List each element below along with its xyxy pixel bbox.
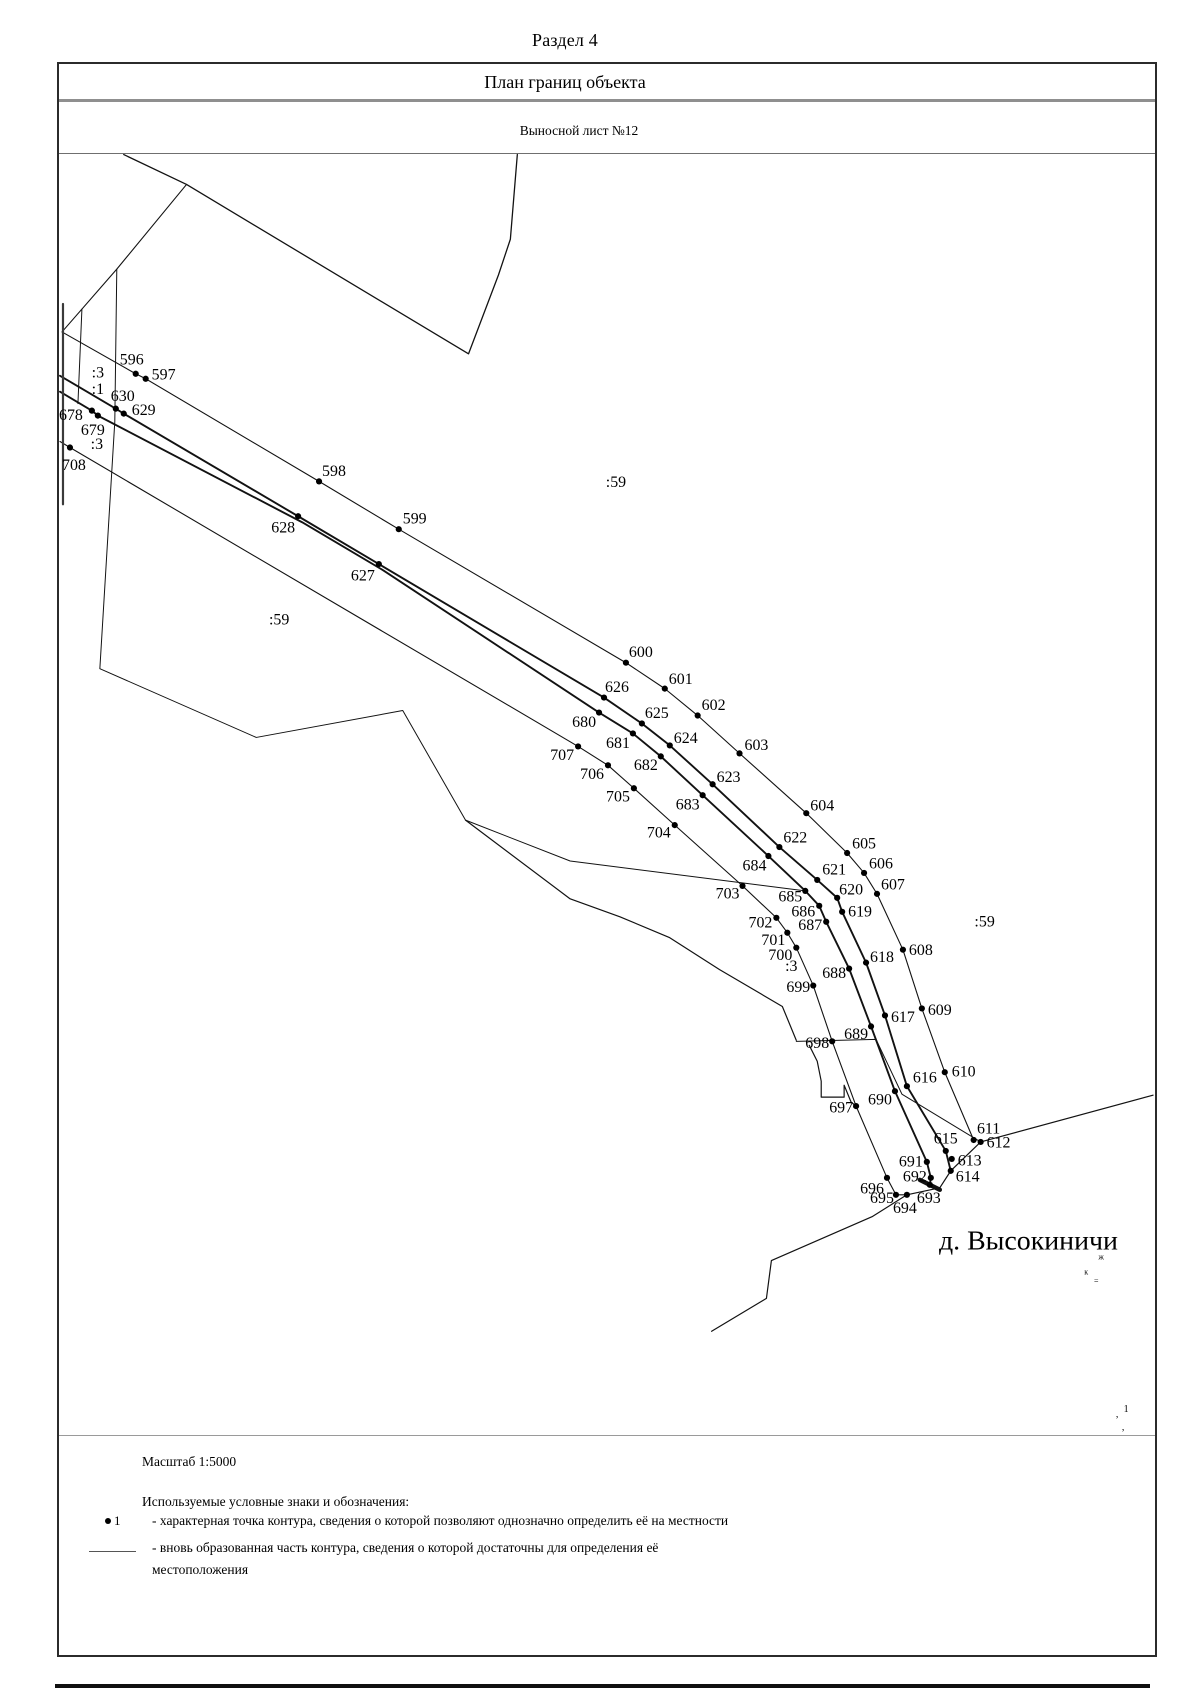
boundary-point-label: 707: [550, 747, 574, 764]
boundary-point-dot: [736, 750, 742, 756]
boundary-line-field-polygon: [124, 155, 518, 354]
boundary-point-label: 598: [322, 463, 346, 480]
boundary-point-dot: [839, 909, 845, 915]
boundary-point-dot: [658, 753, 664, 759]
boundary-point-dot: [816, 903, 822, 909]
parcel-label: :59: [974, 913, 994, 930]
boundary-point-label: 681: [606, 735, 630, 752]
boundary-point-dot: [823, 919, 829, 925]
boundary-point-dot: [396, 526, 402, 532]
boundary-point-label: 623: [717, 769, 741, 786]
boundary-point-label: 622: [783, 830, 807, 847]
boundary-point-label: 626: [605, 679, 629, 696]
tiny-mark: 1: [1124, 1404, 1129, 1415]
boundary-point-label: 620: [839, 881, 863, 898]
boundary-point-label: 693: [917, 1190, 941, 1207]
boundary-point-dot: [95, 413, 101, 419]
boundary-point-label: 609: [928, 1002, 952, 1019]
document-page: { "page": { "title": "Раздел 4" }, "pane…: [0, 0, 1200, 1698]
legend-line-description: - вновь образованная часть контура, свед…: [152, 1537, 692, 1582]
scale-label: Масштаб 1:5000: [142, 1454, 236, 1470]
boundary-point-dot: [295, 513, 301, 519]
point-marker-icon: [105, 1518, 111, 1524]
boundary-point-dot: [773, 915, 779, 921]
boundary-point-label: 694: [893, 1200, 917, 1217]
boundary-point-dot: [814, 877, 820, 883]
boundary-point-label: 625: [645, 705, 669, 722]
boundary-line-road-edge-lower: [60, 392, 931, 1185]
boundary-point-label: 706: [580, 766, 604, 783]
boundary-point-label: 627: [351, 568, 375, 585]
boundary-point-label: 612: [987, 1134, 1011, 1151]
boundary-point-label: 708: [62, 457, 86, 474]
boundary-point-dot: [121, 411, 127, 417]
boundary-point-dot: [596, 709, 602, 715]
boundary-point-label: 630: [111, 388, 135, 405]
boundary-point-dot: [89, 408, 95, 414]
boundary-point-dot: [143, 376, 149, 382]
boundary-point-label: 705: [606, 789, 630, 806]
boundary-point-dot: [900, 947, 906, 953]
parcel-label: :3: [92, 364, 104, 381]
boundary-point-label: 698: [805, 1035, 829, 1052]
village-label: д. Высокиничи: [939, 1226, 1118, 1257]
boundary-point-label: 628: [271, 520, 295, 537]
boundary-point-dot: [739, 883, 745, 889]
legend-point-marker-label: 1: [114, 1513, 121, 1528]
boundary-point-label: 703: [716, 885, 740, 902]
boundary-line-south-boundary: [60, 442, 907, 1195]
boundary-point-dot: [874, 891, 880, 897]
boundary-point-dot: [948, 1168, 954, 1174]
tiny-mark: ,: [1116, 1409, 1119, 1420]
boundary-point-dot: [575, 743, 581, 749]
boundary-point-dot: [928, 1175, 934, 1181]
boundary-point-dot: [904, 1192, 910, 1198]
parcel-label: :3: [91, 436, 103, 453]
boundary-point-label: 699: [786, 979, 810, 996]
plan-frame: План границ объекта Выносной лист №12 59…: [57, 62, 1157, 1657]
page-bottom-rule: [55, 1684, 1150, 1688]
boundary-line-left-vertical-a: [78, 309, 82, 404]
boundary-point-label: 602: [702, 697, 726, 714]
boundary-point-dot: [672, 822, 678, 828]
boundary-point-dot: [943, 1148, 949, 1154]
boundary-point-label: 617: [891, 1009, 915, 1026]
boundary-point-label: 619: [848, 903, 872, 920]
boundary-point-dot: [710, 781, 716, 787]
boundary-point-dot: [853, 1103, 859, 1109]
boundary-point-dot: [803, 810, 809, 816]
boundary-point-dot: [605, 762, 611, 768]
boundary-point-label: 596: [120, 351, 144, 368]
boundary-point-dot: [631, 785, 637, 791]
boundary-point-label: 629: [132, 402, 156, 419]
boundary-point-dot: [667, 742, 673, 748]
boundary-point-label: 600: [629, 644, 653, 661]
boundary-point-label: 684: [743, 857, 767, 874]
boundary-point-dot: [919, 1005, 925, 1011]
boundary-point-dot: [868, 1023, 874, 1029]
boundary-point-dot: [861, 870, 867, 876]
boundary-line-village-boundary: [712, 1095, 1153, 1331]
boundary-point-label: 704: [647, 825, 671, 842]
boundary-point-label: 701: [761, 932, 785, 949]
boundary-point-dot: [662, 686, 668, 692]
boundary-point-label: 615: [934, 1130, 958, 1147]
boundary-point-label: 702: [748, 914, 772, 931]
boundary-point-dot: [133, 371, 139, 377]
parcel-label: :59: [606, 474, 626, 491]
boundary-point-dot: [942, 1069, 948, 1075]
boundary-point-dot: [793, 945, 799, 951]
boundary-point-label: 689: [844, 1026, 868, 1043]
boundary-point-label: 607: [881, 876, 905, 893]
boundary-point-label: 608: [909, 942, 933, 959]
boundary-point-dot: [700, 792, 706, 798]
plan-canvas: 5965975985996006016026036046056066076086…: [59, 64, 1155, 1655]
legend-point-symbol: 1: [105, 1513, 121, 1529]
boundary-line-notch-zigzag: [809, 1045, 856, 1106]
boundary-point-dot: [802, 888, 808, 894]
tiny-mark: ,: [1122, 1422, 1125, 1433]
boundary-point-dot: [829, 1038, 835, 1044]
boundary-point-label: 597: [152, 366, 176, 383]
tiny-mark: к: [1084, 1267, 1088, 1276]
boundary-point-dot: [978, 1139, 984, 1145]
boundary-point-dot: [884, 1175, 890, 1181]
boundary-point-label: 692: [903, 1168, 927, 1185]
boundary-point-label: 678: [59, 407, 83, 424]
parcel-label: :3: [785, 958, 797, 975]
boundary-point-label: 697: [829, 1100, 853, 1117]
legend-point-description: - характерная точка контура, сведения о …: [152, 1513, 972, 1529]
parcel-label: :59: [269, 611, 289, 628]
boundary-point-dot: [882, 1012, 888, 1018]
boundary-line-north-boundary: [62, 184, 974, 1140]
boundary-point-dot: [844, 850, 850, 856]
boundary-point-label: 604: [810, 798, 834, 815]
boundary-point-label: 610: [952, 1064, 976, 1081]
boundary-point-label: 688: [822, 965, 846, 982]
boundary-line-settlement-west: [466, 820, 797, 1040]
boundary-point-label: 616: [913, 1070, 937, 1087]
boundary-point-label: 690: [868, 1092, 892, 1109]
boundary-point-dot: [630, 730, 636, 736]
boundary-point-dot: [695, 712, 701, 718]
boundary-point-label: 624: [674, 730, 698, 747]
boundary-point-label: 687: [798, 917, 822, 934]
boundary-point-label: 599: [403, 511, 427, 528]
boundary-point-dot: [776, 844, 782, 850]
parcel-label: :1: [92, 381, 104, 398]
boundary-point-label: 696: [860, 1180, 884, 1197]
boundary-point-label: 605: [852, 836, 876, 853]
legend-separator: [59, 1435, 1155, 1436]
boundary-point-label: 603: [745, 737, 769, 754]
legend-line-symbol: [89, 1551, 136, 1552]
boundary-point-label: 682: [634, 757, 658, 774]
page-title: Раздел 4: [0, 30, 1130, 51]
boundary-point-dot: [927, 1182, 933, 1188]
boundary-point-label: 606: [869, 855, 893, 872]
tiny-mark: =: [1094, 1276, 1099, 1285]
boundary-point-label: 613: [958, 1152, 982, 1169]
boundary-point-dot: [113, 406, 119, 412]
boundary-point-dot: [971, 1137, 977, 1143]
boundary-point-label: 680: [572, 714, 596, 731]
boundary-point-label: 614: [956, 1168, 980, 1185]
plan-labels-group: 5965975985996006016026036046056066076086…: [59, 351, 1129, 1433]
boundary-point-label: 621: [822, 861, 846, 878]
boundary-point-label: 683: [676, 797, 700, 814]
plan-points-group: [67, 371, 984, 1198]
boundary-point-dot: [892, 1088, 898, 1094]
boundary-point-label: 601: [669, 671, 693, 688]
boundary-point-dot: [810, 982, 816, 988]
boundary-point-dot: [376, 561, 382, 567]
boundary-point-dot: [904, 1083, 910, 1089]
boundary-point-dot: [863, 960, 869, 966]
boundary-point-dot: [924, 1159, 930, 1165]
boundary-point-dot: [949, 1156, 955, 1162]
boundary-point-dot: [846, 966, 852, 972]
boundary-point-label: 618: [870, 949, 894, 966]
legend-title: Используемые условные знаки и обозначени…: [142, 1494, 409, 1510]
boundary-point-dot: [67, 444, 73, 450]
